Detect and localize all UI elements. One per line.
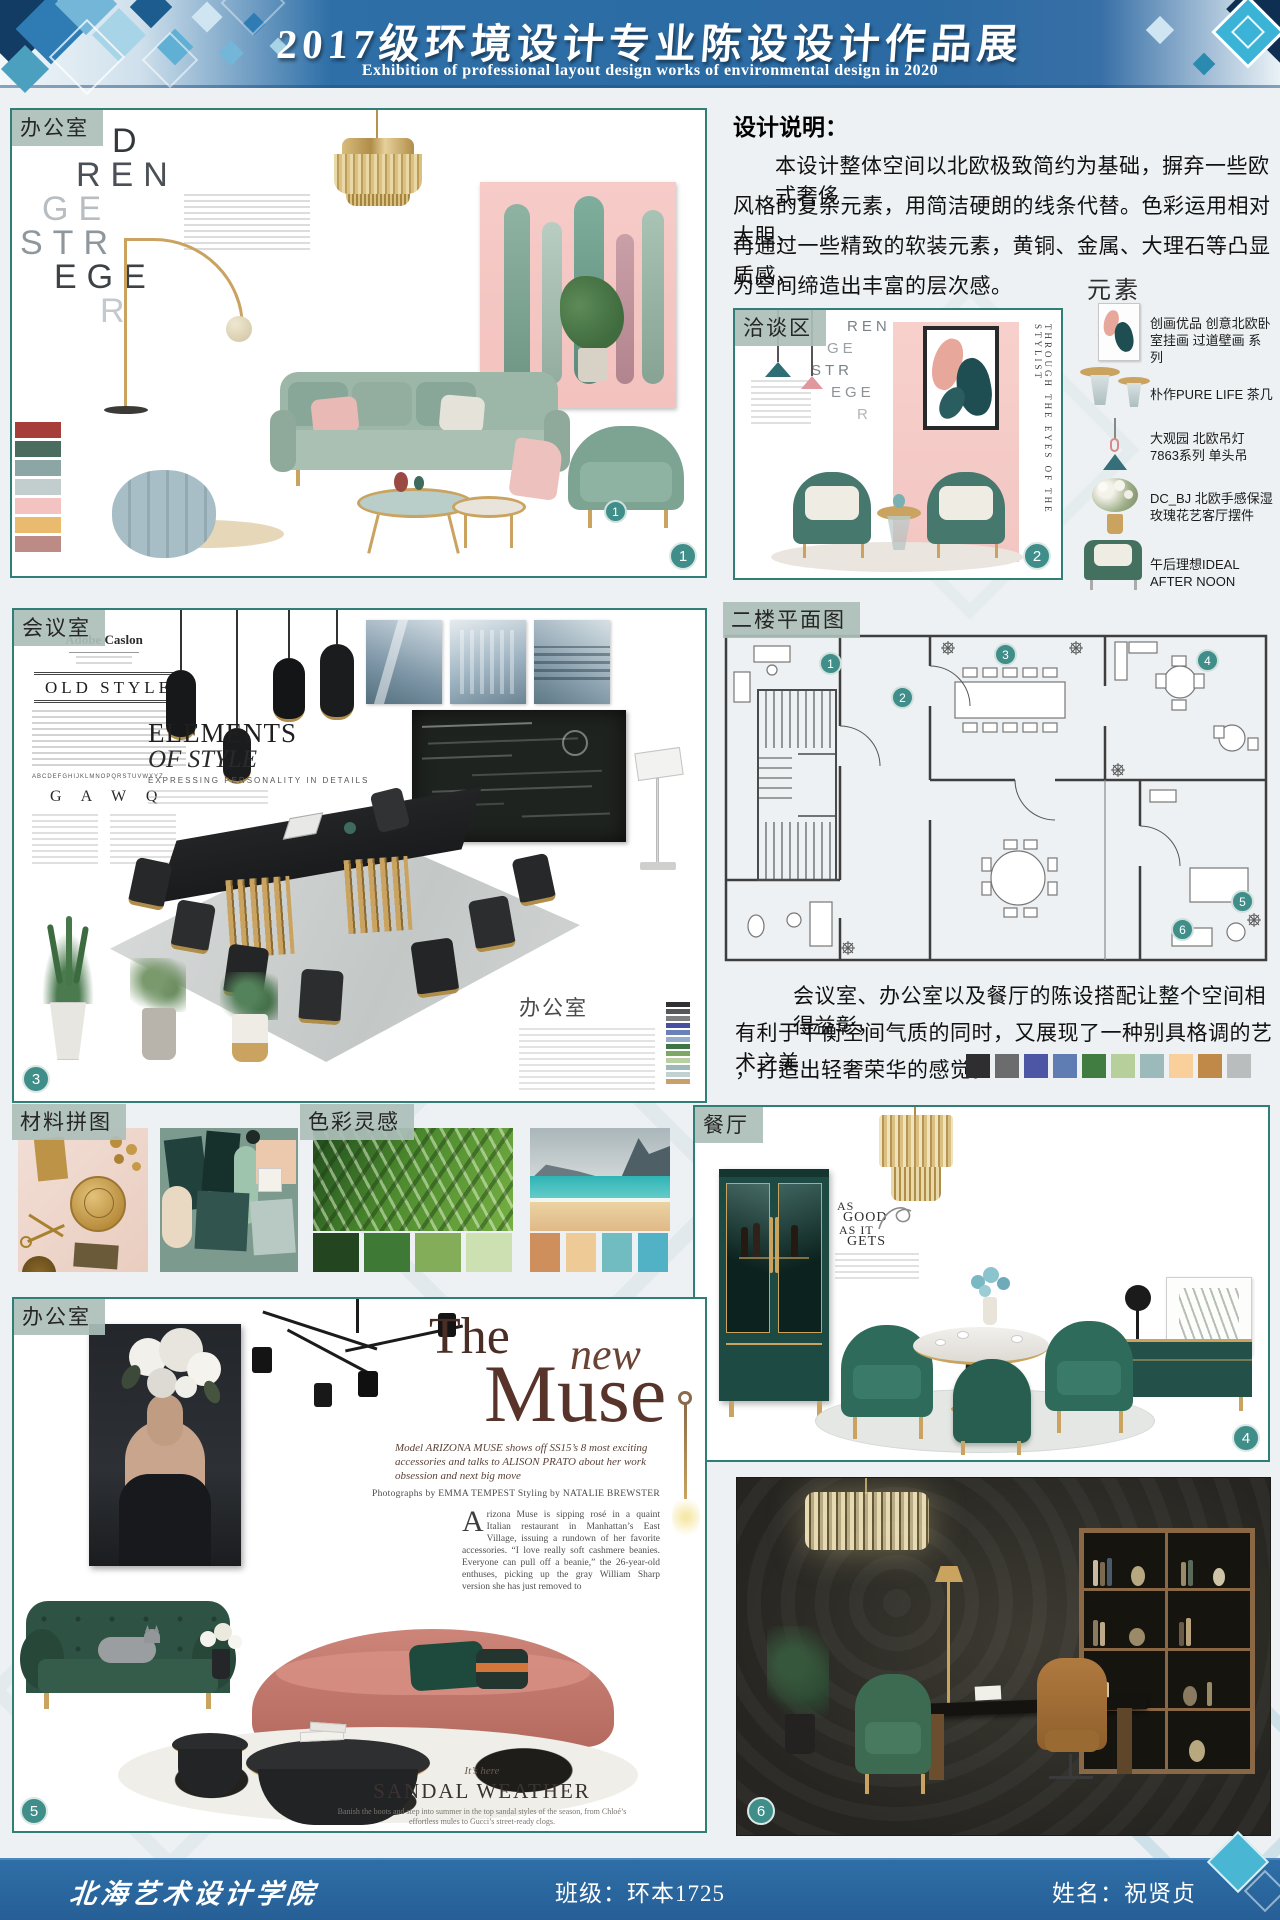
design-note-title: 设计说明： bbox=[733, 108, 848, 142]
meeting-palette bbox=[666, 1002, 690, 1084]
header-banner: 2017级环境设计专业陈设设计作品展 Exhibition of profess… bbox=[0, 0, 1280, 88]
meeting-inner-label: 办公室 bbox=[519, 992, 588, 1022]
footer-top-rule bbox=[0, 1858, 1280, 1860]
beach-palette bbox=[530, 1233, 668, 1272]
header-bottom-rule bbox=[0, 85, 1280, 88]
floor-plan: 1 2 3 4 5 6 bbox=[720, 630, 1272, 966]
panel-dark-office: 6 bbox=[737, 1478, 1270, 1835]
scene-palette bbox=[15, 422, 61, 552]
muse-subtitle: Model ARIZONA MUSE shows off SS15’s 8 mo… bbox=[395, 1441, 671, 1483]
plan-marker-3: 3 bbox=[994, 643, 1017, 666]
panel-dining: 餐厅 AS GOOD AS IT GETS bbox=[693, 1105, 1270, 1462]
footer-name: 姓名：祝贤贞 bbox=[1052, 1874, 1196, 1908]
green-cushion bbox=[408, 1640, 485, 1691]
decorative-text-block bbox=[184, 194, 310, 252]
element-item-text: 大观园 北欧吊灯 7863系列 单头吊 bbox=[1150, 430, 1274, 464]
panel-office-bottom: 办公室 The new Muse bbox=[12, 1297, 707, 1833]
color-inspiration-label: 色彩灵感 bbox=[300, 1104, 414, 1140]
plan-marker-5: 5 bbox=[1231, 890, 1254, 913]
element-item bbox=[1090, 476, 1140, 538]
poster-subtitle: Exhibition of professional layout design… bbox=[250, 62, 1050, 80]
materials-image-teal bbox=[160, 1128, 298, 1272]
element-item bbox=[1078, 365, 1150, 409]
plan-marker-2: 2 bbox=[891, 686, 914, 709]
plan-marker-6: 6 bbox=[1171, 918, 1194, 941]
poster-title: 2017级环境设计专业陈设设计作品展 bbox=[248, 10, 1052, 70]
element-item bbox=[1098, 303, 1140, 361]
materials-image-gold bbox=[18, 1128, 148, 1272]
element-item bbox=[1082, 538, 1144, 592]
plan-marker-1: 1 bbox=[819, 652, 842, 675]
palm-image bbox=[313, 1128, 513, 1231]
scene-marker-1: 1 bbox=[604, 500, 627, 523]
panel-office-top-label: 办公室 bbox=[12, 110, 103, 146]
muse-body: Arizona Muse is sipping rosé in a quaint… bbox=[462, 1509, 660, 1593]
panel-badge-3: 3 bbox=[22, 1065, 50, 1093]
sandal-block: It’s here SANDAL WEATHER Banish the boot… bbox=[332, 1765, 632, 1827]
plan-note-line: ，打造出轻奢荣华的感觉。 bbox=[735, 1054, 993, 1084]
plan-note-palette bbox=[966, 1054, 1251, 1078]
decorative-text-block bbox=[751, 380, 811, 426]
footer-school: 北海艺术设计学院 bbox=[68, 1872, 320, 1911]
element-item bbox=[1102, 418, 1128, 474]
plan-marker-4: 4 bbox=[1196, 649, 1219, 672]
panel-negotiation: 洽谈区 REN GE STR EGE R THROUGH THE EYES OF… bbox=[733, 308, 1063, 580]
panel-badge-1: 1 bbox=[669, 542, 697, 570]
stylist-caption: THROUGH THE EYES OF THE STYLIST bbox=[1033, 324, 1053, 524]
panel-office-top: 办公室 D REN GE STR EGE R bbox=[10, 108, 707, 578]
design-note-line: 为空间缔造出丰富的层次感。 bbox=[733, 270, 1013, 300]
sandal-caption: Banish the boots and step into summer in… bbox=[332, 1807, 632, 1827]
materials-label: 材料拼图 bbox=[12, 1104, 126, 1140]
panel-badge-5: 5 bbox=[20, 1797, 48, 1825]
element-item-text: DC_BJ 北欧手感保湿玫瑰花艺客厅摆件 bbox=[1150, 490, 1274, 524]
beach-image bbox=[530, 1128, 670, 1231]
muse-credits: Photographs by EMMA TEMPEST Styling by N… bbox=[372, 1489, 672, 1499]
floor-plan-drawing bbox=[720, 630, 1272, 966]
footer-class: 班级：环本1725 bbox=[455, 1874, 825, 1908]
panel-badge-2: 2 bbox=[1023, 542, 1051, 570]
panel-badge-4: 4 bbox=[1232, 1424, 1260, 1452]
panel-meeting: 会议室 Adobe Caslon OLD STYLE ABCDEFGHIJKLM… bbox=[12, 608, 707, 1103]
green-palette bbox=[313, 1233, 512, 1272]
footer-bar: 北海艺术设计学院 班级：环本1725 姓名：祝贤贞 bbox=[0, 1858, 1280, 1920]
panel-badge-6: 6 bbox=[747, 1797, 775, 1825]
poster-page: 2017级环境设计专业陈设设计作品展 Exhibition of profess… bbox=[0, 0, 1280, 1920]
panel-meeting-label: 会议室 bbox=[14, 610, 105, 646]
element-item-text: 朴作PURE LIFE 茶几 bbox=[1150, 386, 1274, 403]
panel-office-bottom-label: 办公室 bbox=[14, 1299, 105, 1335]
element-item-text: 创画优品 创意北欧卧室挂画 过道壁画 系列 bbox=[1150, 315, 1274, 366]
panel-negotiation-label: 洽谈区 bbox=[735, 310, 826, 346]
flourish-icon bbox=[875, 1199, 915, 1239]
panel-dining-label: 餐厅 bbox=[695, 1107, 763, 1143]
muse-dropcap: A bbox=[462, 1509, 487, 1535]
leaf-painting bbox=[923, 326, 999, 430]
its-here-text: It’s here bbox=[332, 1765, 632, 1777]
sandal-title: SANDAL WEATHER bbox=[332, 1779, 632, 1804]
floor-plan-label: 二楼平面图 bbox=[723, 602, 860, 638]
elements-title: 元素 bbox=[1087, 270, 1141, 305]
muse-portrait bbox=[89, 1324, 241, 1566]
decorative-text-block bbox=[519, 1028, 655, 1090]
element-item-text: 午后理想IDEAL AFTER NOON bbox=[1150, 556, 1274, 590]
